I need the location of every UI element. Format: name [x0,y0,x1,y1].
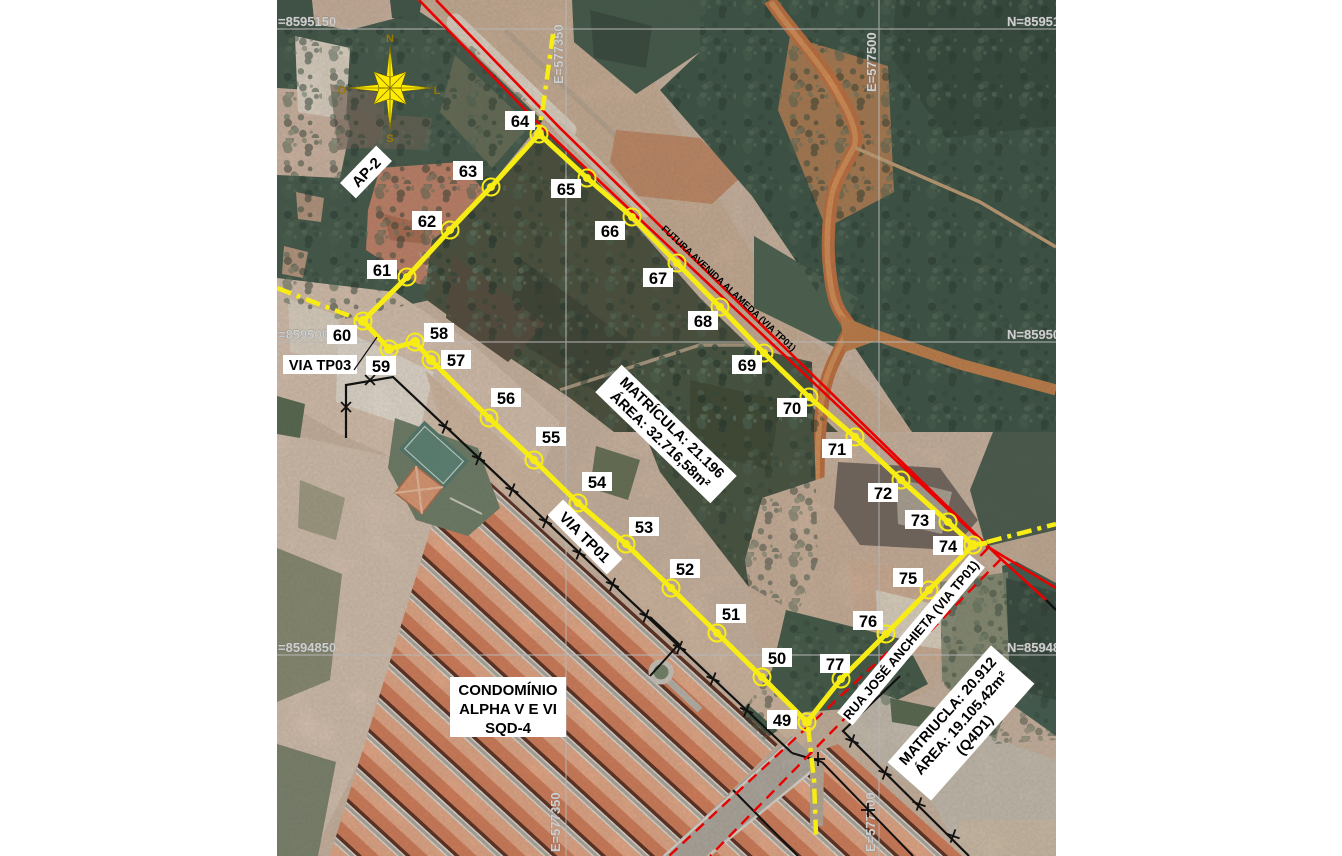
svg-text:60: 60 [333,327,351,345]
svg-text:51: 51 [722,606,740,624]
svg-text:SQD-4: SQD-4 [485,720,532,737]
svg-text:L: L [434,85,441,97]
svg-text:58: 58 [430,325,448,343]
svg-text:N=8594850: N=8594850 [1007,640,1075,655]
svg-text:CONDOMÍNIO: CONDOMÍNIO [458,682,557,699]
svg-text:=8595150: =8595150 [278,14,336,29]
svg-text:71: 71 [828,441,846,459]
svg-text:74: 74 [939,538,958,556]
svg-text:50: 50 [768,650,786,668]
svg-text:VIA TP03: VIA TP03 [289,358,351,374]
svg-text:49: 49 [773,712,791,730]
svg-text:E=577500: E=577500 [863,792,878,852]
svg-text:N=8595150: N=8595150 [1007,14,1075,29]
svg-text:54: 54 [588,474,607,492]
svg-text:63: 63 [459,163,477,181]
svg-text:ALPHA V E VI: ALPHA V E VI [459,701,557,718]
svg-text:75: 75 [899,570,917,588]
svg-text:64: 64 [511,113,530,131]
svg-text:69: 69 [738,357,756,375]
svg-text:N=8595000: N=8595000 [1007,327,1075,342]
svg-text:66: 66 [601,223,619,241]
svg-text:57: 57 [447,352,465,370]
svg-text:E=577350: E=577350 [551,24,566,84]
svg-text:65: 65 [557,181,575,199]
svg-text:68: 68 [694,313,712,331]
svg-text:73: 73 [911,512,929,530]
svg-text:77: 77 [826,656,844,674]
svg-text:E=577500: E=577500 [864,32,879,92]
svg-text:61: 61 [373,262,391,280]
svg-text:70: 70 [783,400,801,418]
svg-text:O: O [338,85,347,97]
svg-text:52: 52 [676,561,694,579]
svg-text:E=577350: E=577350 [548,792,563,852]
svg-text:N: N [386,33,394,45]
svg-text:62: 62 [418,213,436,231]
svg-text:55: 55 [542,429,560,447]
svg-text:67: 67 [649,270,667,288]
svg-text:S: S [386,133,393,145]
svg-text:53: 53 [635,519,653,537]
svg-text:59: 59 [372,358,390,376]
svg-text:56: 56 [497,390,515,408]
svg-text:=8594850: =8594850 [278,640,336,655]
svg-text:72: 72 [874,485,892,503]
svg-text:76: 76 [859,613,877,631]
